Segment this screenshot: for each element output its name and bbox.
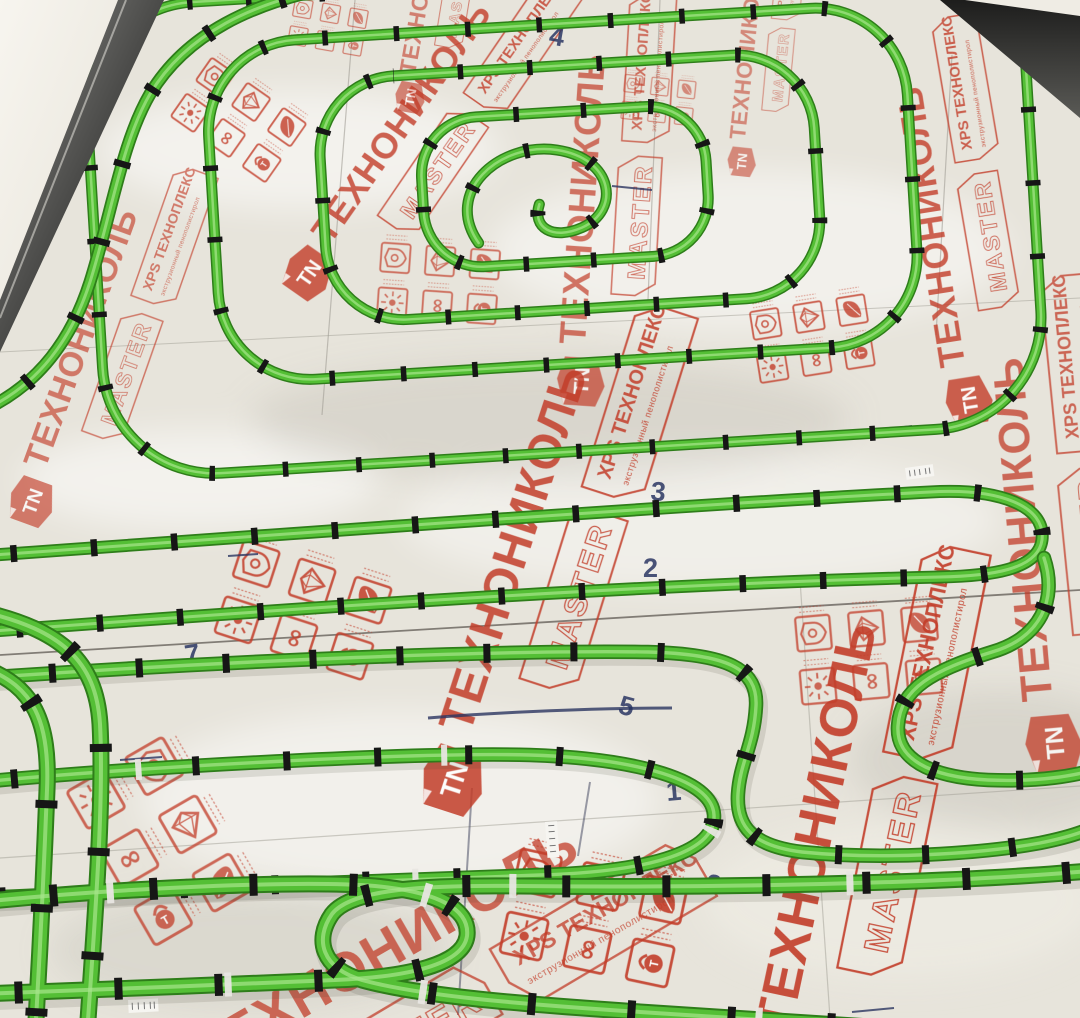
barcode-sticker [545, 821, 559, 858]
photo-underfloor-heating: ∞ Т [0, 0, 1080, 1018]
scene-canvas: ∞ Т [0, 0, 1080, 1018]
handwritten-mark: 2 [643, 553, 658, 583]
